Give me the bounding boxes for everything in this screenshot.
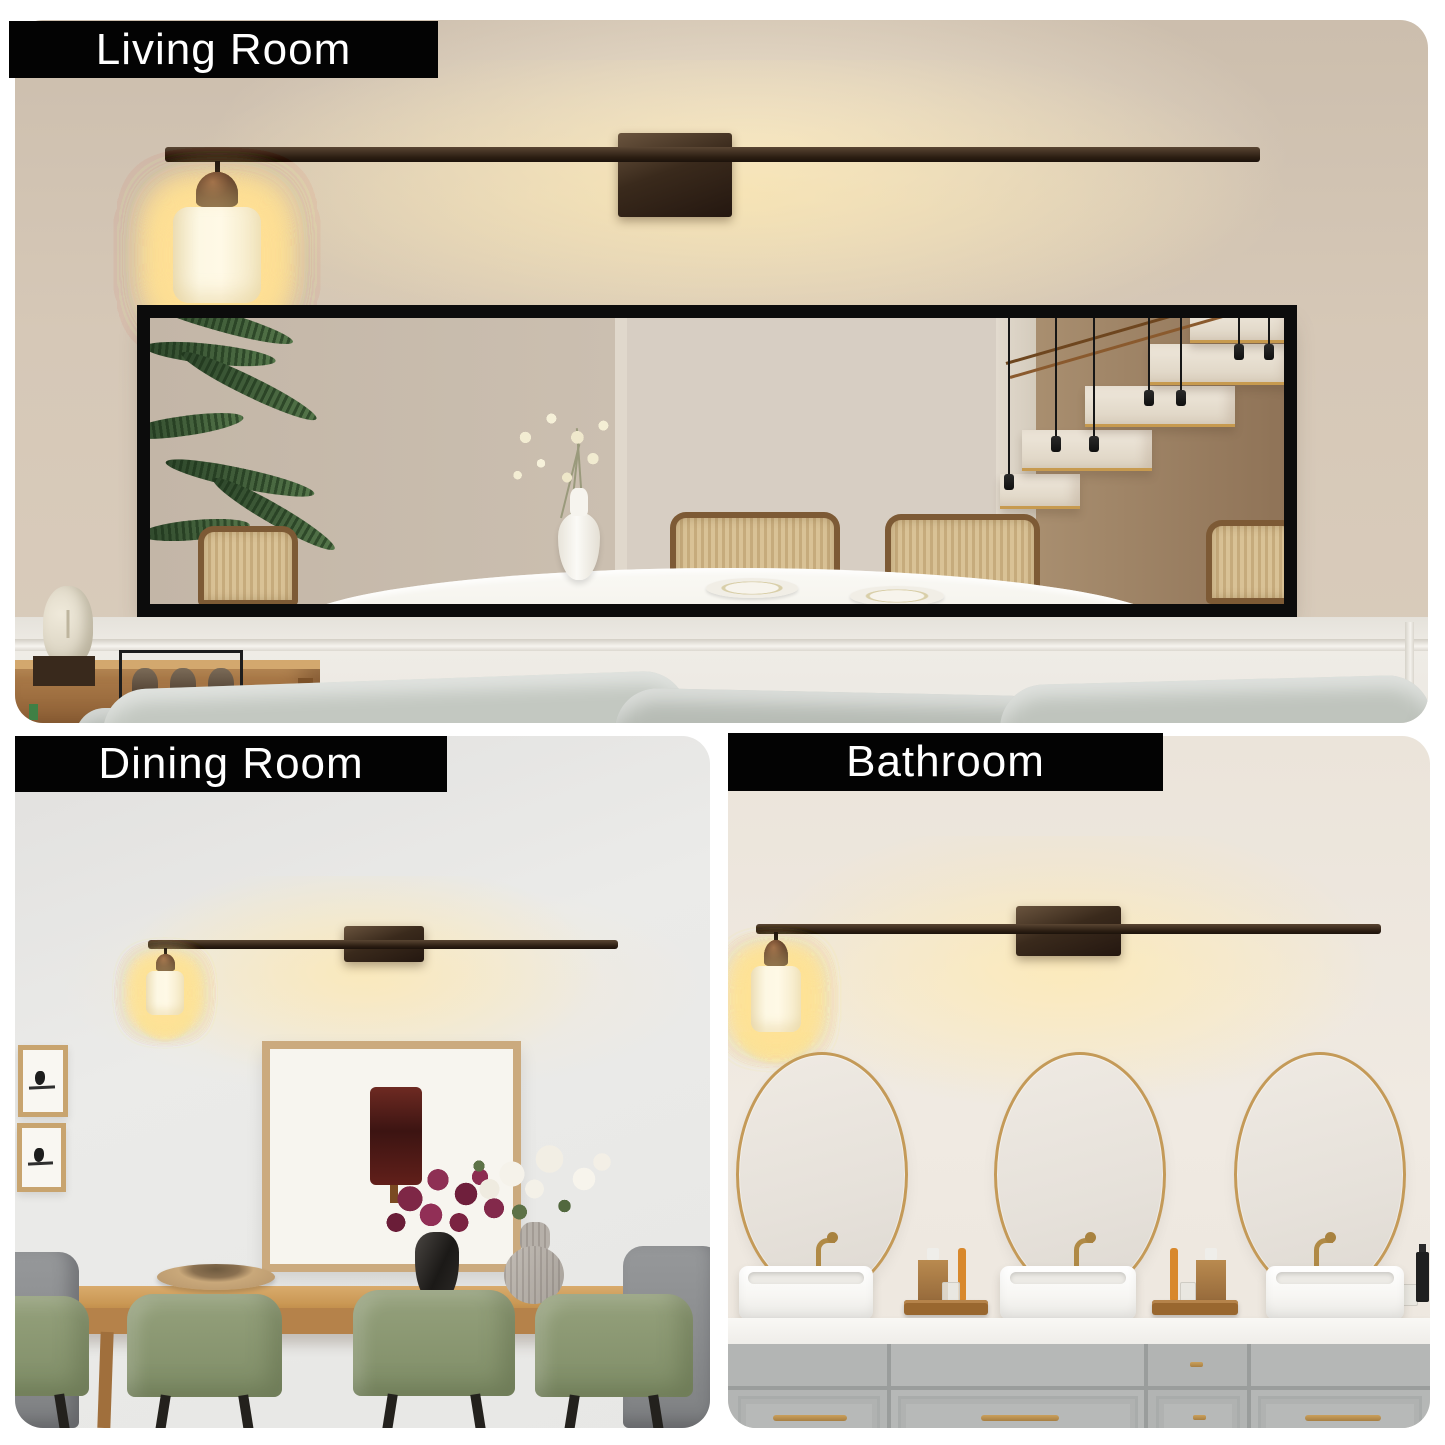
place-setting: [706, 578, 798, 598]
cabinet-drawer: [898, 1396, 1138, 1428]
vanity-cabinet: [728, 1344, 1430, 1428]
lamp-cap: [156, 954, 175, 971]
rattan-chair: [198, 526, 298, 606]
stair-step: [1085, 386, 1235, 427]
sculpture-base: [33, 656, 95, 686]
lamp-shade: [173, 207, 261, 303]
vanity-light: [146, 948, 184, 1015]
wooden-tray: [904, 1300, 988, 1315]
cabinet-drawer: [1156, 1396, 1240, 1428]
lamp-stem: [774, 932, 778, 940]
lamp-shade: [751, 966, 801, 1032]
rattan-chair: [1206, 520, 1297, 604]
place-setting: [850, 586, 944, 606]
fixture-mount-plate: [618, 133, 732, 217]
lamp-shade: [146, 971, 184, 1015]
green-dining-chair: [353, 1290, 515, 1396]
pendant-cord: [1093, 318, 1095, 436]
fixture-bar: [148, 940, 618, 949]
lamp-cap: [196, 172, 238, 207]
cabinet-drawer: [738, 1396, 880, 1428]
wall-faucet: [1070, 1232, 1096, 1268]
lamp-cap: [764, 940, 788, 966]
soap-dispenser: [1196, 1260, 1226, 1304]
panel-label-bathroom: Bathroom: [728, 733, 1163, 791]
pendant-cord: [1268, 318, 1270, 344]
small-art-frame: [17, 1123, 66, 1192]
cabinet-seam: [728, 1386, 1430, 1390]
stair-step: [1190, 310, 1290, 343]
drawer-handle: [981, 1415, 1059, 1421]
pendant-cord: [1055, 318, 1057, 436]
drawer-knob: [1190, 1362, 1203, 1367]
wooden-tray: [1152, 1300, 1238, 1315]
table-leg: [97, 1332, 113, 1428]
face-vase-sculpture: [43, 586, 93, 666]
vessel-sink: [1266, 1266, 1404, 1320]
bathroom-panel: [728, 736, 1430, 1428]
lamp-stem: [215, 161, 220, 172]
pendant-cord: [1238, 318, 1240, 344]
panel-label-living-room: Living Room: [9, 21, 438, 78]
green-dining-chair: [127, 1294, 282, 1397]
wall-faucet: [1310, 1232, 1336, 1268]
dining-room-panel: [15, 736, 710, 1428]
toothbrush: [1170, 1248, 1178, 1302]
panel-label-dining-room: Dining Room: [15, 736, 447, 792]
white-peony-bouquet: [467, 1134, 617, 1234]
drawer-knob: [1193, 1415, 1206, 1420]
vessel-sink: [1000, 1266, 1136, 1320]
pendant-cord: [1148, 318, 1150, 390]
green-dining-chair: [535, 1294, 693, 1397]
vanity-countertop: [728, 1318, 1430, 1346]
flower-bouquet: [502, 402, 632, 520]
fixture-bar: [756, 924, 1381, 934]
pendant-cord: [1008, 318, 1010, 474]
product-collage: Living Room Dining Room Bathroom: [0, 0, 1445, 1445]
vanity-light: [173, 161, 261, 303]
wall-faucet: [812, 1232, 838, 1268]
pump-bottle: [1416, 1252, 1429, 1302]
living-room-panel: [15, 20, 1428, 723]
pendant-cord: [1180, 318, 1182, 390]
metal-bowl: [157, 1264, 275, 1290]
small-art-frame: [18, 1045, 68, 1117]
vanity-light: [751, 932, 801, 1032]
drawer-handle: [1305, 1415, 1381, 1421]
cabinet-drawer: [1258, 1396, 1422, 1428]
book: [29, 704, 38, 720]
drawer-handle: [773, 1415, 847, 1421]
green-dining-chair: [15, 1296, 89, 1396]
fixture-bar: [165, 147, 1260, 162]
vessel-sink: [739, 1266, 873, 1320]
wall-mirror: [137, 305, 1297, 617]
stair-step: [1022, 430, 1152, 471]
